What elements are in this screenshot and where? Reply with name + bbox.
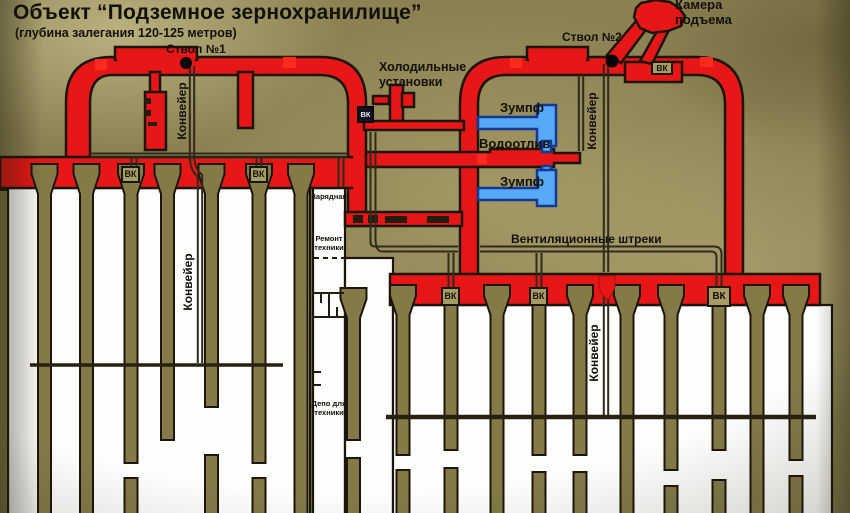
sump-upper-label: Зумпф (500, 100, 544, 115)
charging-label: Зарядная (311, 192, 347, 201)
page-title: Объект “Подземное зернохранилище” (13, 1, 422, 25)
cross-link-gallery (364, 121, 464, 130)
vent-drifts-label: Вентиляционные штреки (511, 232, 662, 246)
vk-box-5: ВК (707, 286, 731, 307)
vk-box-2: ВК (249, 166, 268, 183)
drainage-label: Водоотлив (479, 136, 550, 151)
vk-box-6: ВК (651, 61, 673, 75)
vk-box-1: ВК (121, 166, 140, 183)
page-subtitle: (глубина залегания 120-125 метров) (15, 26, 237, 40)
vk-box-3: ВК (441, 287, 460, 306)
repair-label: Ремонт техники (311, 234, 347, 252)
facility-plan: Объект “Подземное зернохранилище” (глуби… (0, 0, 850, 513)
conveyor-label-1: Конвейер (175, 69, 191, 153)
conveyor-label-2: Конвейер (181, 240, 197, 324)
refrigeration-label: Холодильные установки (379, 60, 466, 89)
chamber-field-right (393, 305, 832, 513)
vk-box-7: ВК (357, 106, 374, 123)
shaft1-label: Ствол №1 (166, 42, 226, 56)
refrigeration-units (364, 85, 464, 130)
shaft1-dot (180, 57, 192, 69)
sump-lower-label: Зумпф (500, 174, 544, 189)
conveyor-label-3: Конвейер (585, 79, 601, 163)
vk-box-4: ВК (529, 287, 548, 306)
depot-label: Депо для техники (311, 399, 347, 417)
shaft2-label: Ствол №2 (562, 30, 622, 44)
lift-chamber-label: Камера подъема (675, 0, 732, 27)
shaft2-dot (606, 55, 619, 68)
conveyor-label-4: Конвейер (587, 311, 603, 395)
machine-room-structures (145, 72, 253, 150)
